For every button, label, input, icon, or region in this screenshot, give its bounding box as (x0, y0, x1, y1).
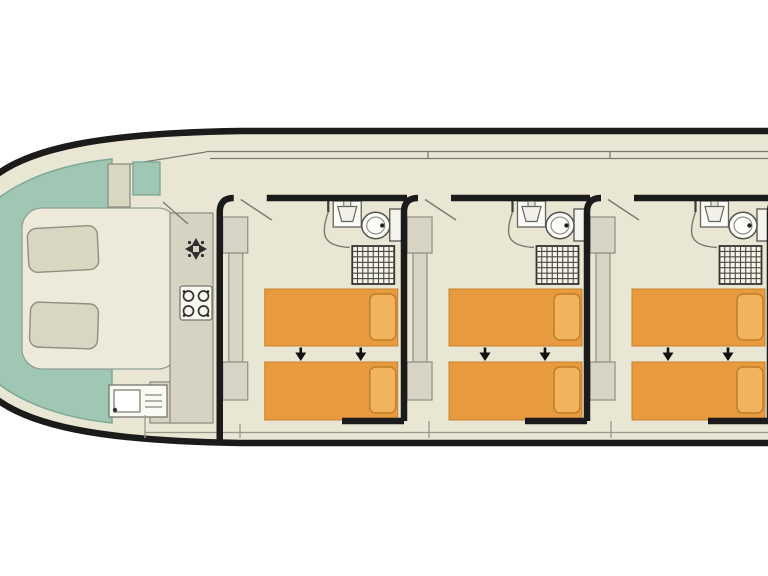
wardrobe-bottom (223, 362, 248, 400)
basin-bowl (522, 207, 541, 222)
faucet-icon (113, 408, 117, 412)
boat-deck-plan (0, 0, 768, 576)
wardrobe-mid (229, 253, 243, 362)
helm-console (108, 164, 130, 207)
galley-sink (109, 385, 167, 417)
toilet-flush-dot (747, 223, 751, 227)
pillow (554, 294, 580, 340)
wardrobe-mid (596, 253, 610, 362)
toilet-tank (390, 209, 403, 241)
wardrobe-top (590, 217, 615, 253)
toilet-bowl (546, 212, 574, 238)
toilet-flush-dot (380, 223, 384, 227)
toilet-flush-dot (564, 223, 568, 227)
pillow (554, 367, 580, 413)
bow-bench-seat (29, 302, 99, 349)
wardrobe-top (223, 217, 248, 253)
wardrobe-mid (413, 253, 427, 362)
deck-step (133, 162, 160, 195)
faucet-icon (711, 201, 718, 207)
toilet-bowl (729, 212, 757, 238)
basin-bowl (705, 207, 724, 222)
pillow (737, 294, 763, 340)
basin-bowl (338, 207, 357, 222)
wardrobe-bottom (407, 362, 432, 400)
toilet-bowl (362, 212, 390, 238)
pillow (370, 367, 396, 413)
wardrobe-top (407, 217, 432, 253)
toilet-tank (757, 209, 768, 241)
pillow (737, 367, 763, 413)
faucet-icon (528, 201, 535, 207)
stove (180, 286, 212, 320)
wardrobe-bottom (590, 362, 615, 400)
bow-bench-seat (27, 225, 99, 273)
faucet-icon (344, 201, 351, 207)
pillow (370, 294, 396, 340)
